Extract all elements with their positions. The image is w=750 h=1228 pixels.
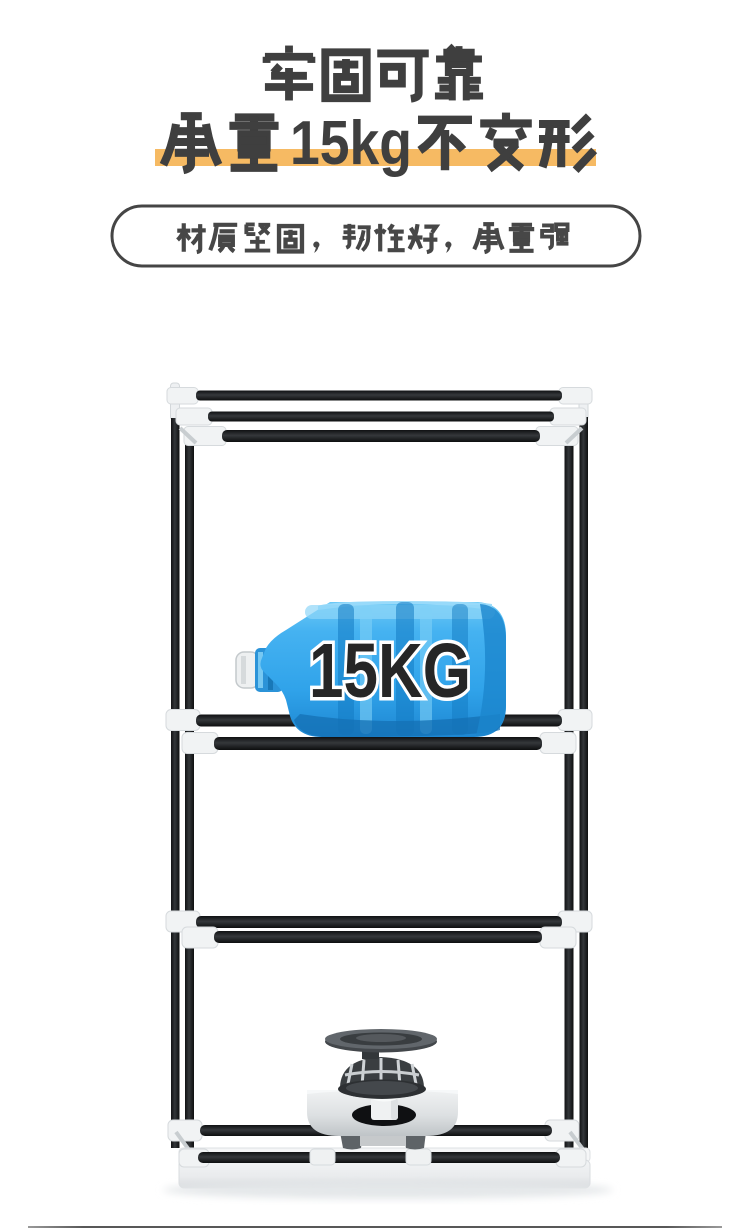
svg-text:15KG: 15KG [309,628,471,714]
svg-text:15kg: 15kg [290,109,412,178]
